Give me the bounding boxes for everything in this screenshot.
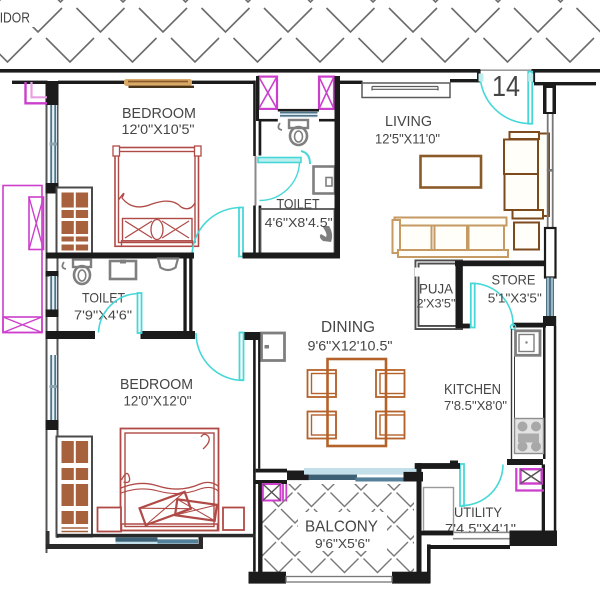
svg-text:4'6"X8'4.5": 4'6"X8'4.5" <box>265 215 333 230</box>
svg-text:STORE: STORE <box>492 271 536 287</box>
svg-text:CORRIDOR: CORRIDOR <box>0 10 30 27</box>
svg-text:PUJA: PUJA <box>419 280 454 296</box>
svg-text:BEDROOM: BEDROOM <box>122 105 196 122</box>
svg-text:12'5"X11'0": 12'5"X11'0" <box>375 131 440 147</box>
svg-text:KITCHEN: KITCHEN <box>444 381 501 398</box>
svg-text:TOILET: TOILET <box>82 290 125 306</box>
svg-text:7'4.5"X4'1": 7'4.5"X4'1" <box>445 521 516 536</box>
svg-text:9'6"X12'10.5": 9'6"X12'10.5" <box>308 338 393 354</box>
svg-text:2'X3'5": 2'X3'5" <box>417 297 456 311</box>
svg-text:UTILITY: UTILITY <box>454 504 503 520</box>
svg-text:12'0"X12'0": 12'0"X12'0" <box>124 393 192 409</box>
svg-text:14: 14 <box>492 71 520 103</box>
svg-text:7'8.5"X8'0": 7'8.5"X8'0" <box>444 398 507 413</box>
svg-text:9'6"X5'6": 9'6"X5'6" <box>315 536 370 551</box>
svg-text:DINING: DINING <box>321 319 375 336</box>
svg-text:5'1"X3'5": 5'1"X3'5" <box>488 290 542 305</box>
svg-text:LIVING: LIVING <box>385 113 432 130</box>
svg-text:TOILET: TOILET <box>277 197 320 212</box>
svg-text:12'0"X10'5": 12'0"X10'5" <box>122 121 195 137</box>
svg-text:BALCONY: BALCONY <box>305 519 378 536</box>
svg-text:BEDROOM: BEDROOM <box>120 376 193 393</box>
